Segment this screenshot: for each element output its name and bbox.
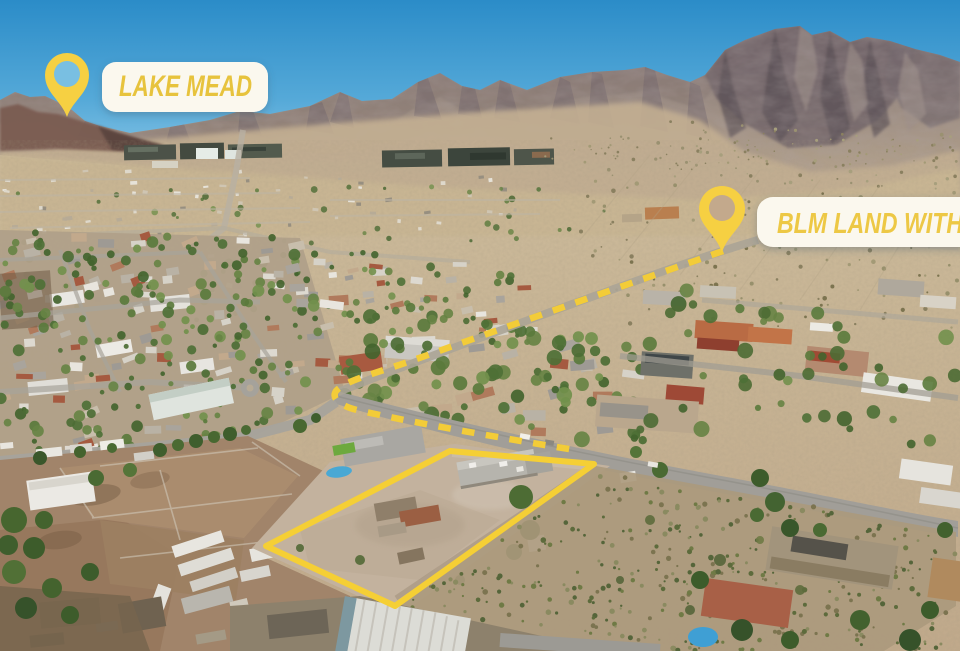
svg-text:BLM LAND WITH: BLM LAND WITH <box>777 208 960 240</box>
svg-text:LAKE MEAD: LAKE MEAD <box>119 70 252 103</box>
